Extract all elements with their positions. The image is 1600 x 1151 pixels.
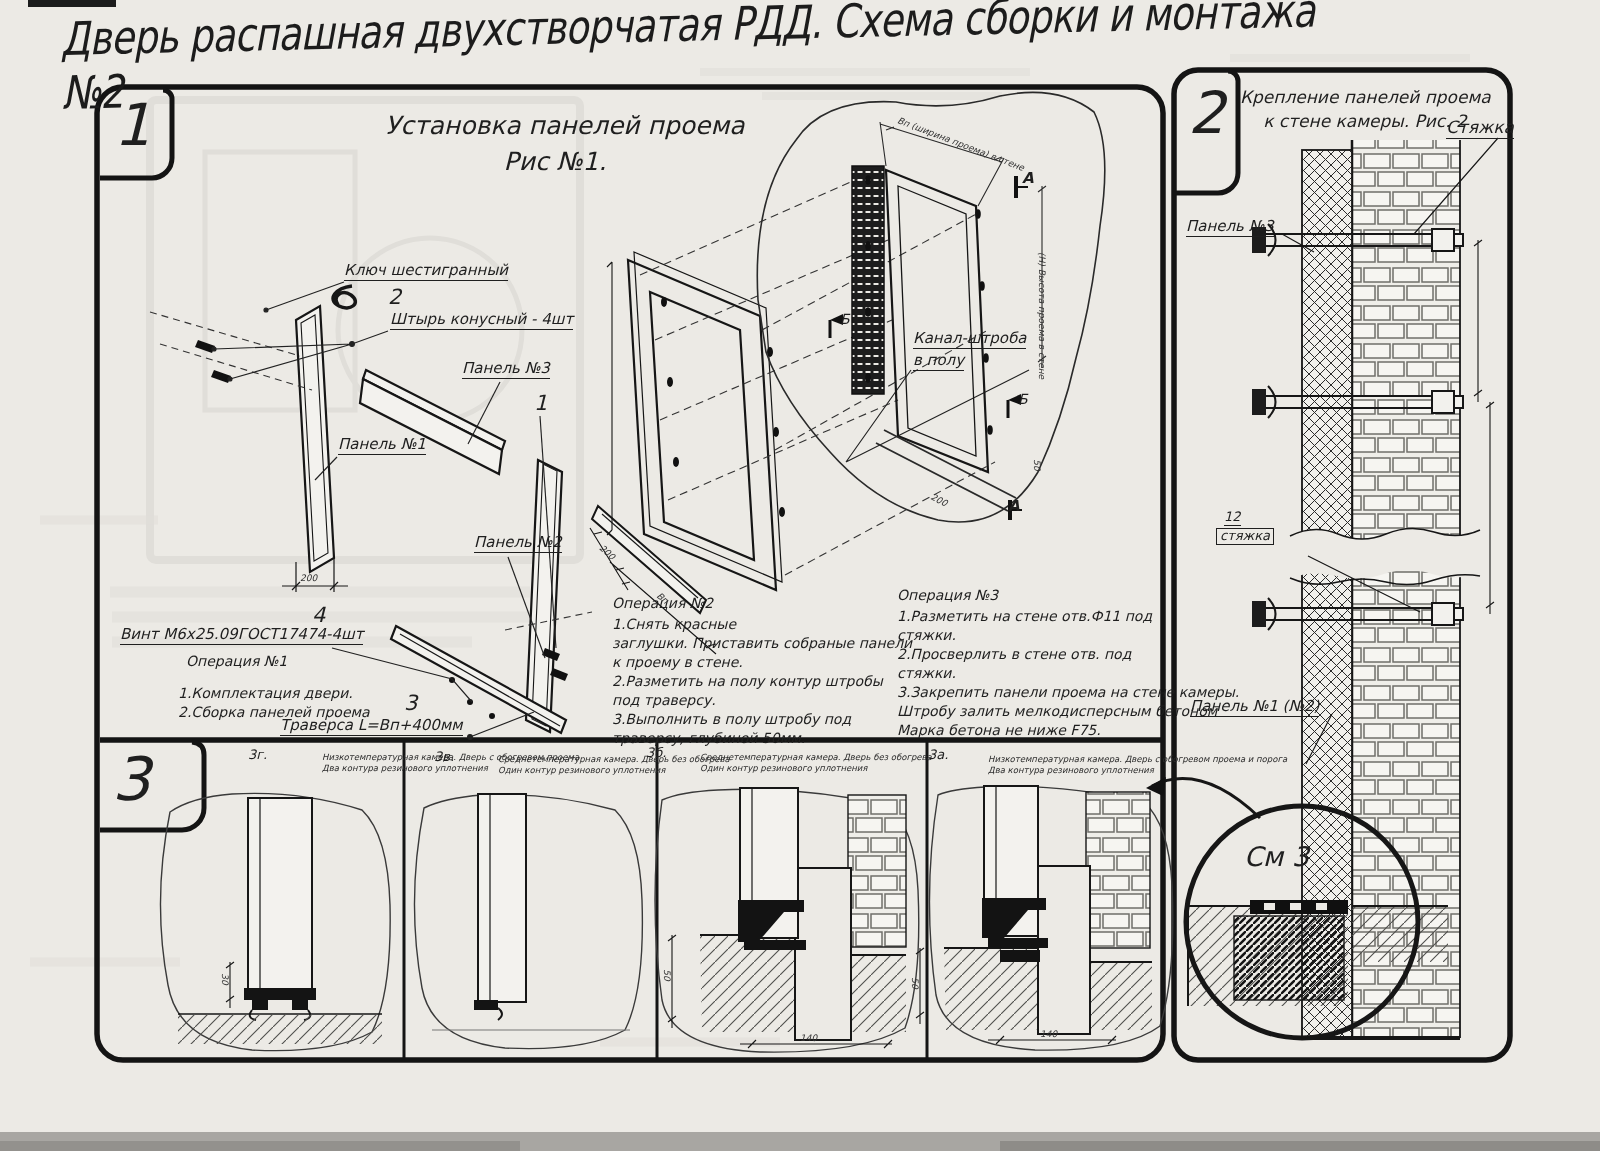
op2-line: 1.Снять красные	[612, 617, 736, 632]
label-channel-1: Канал-штроба	[913, 330, 1026, 349]
dim-50: 50	[661, 969, 671, 980]
detail-id-3v: 3в.	[434, 750, 454, 764]
op3-line: Марка бетона не ниже F75.	[897, 723, 1101, 738]
op3-title: Операция №3	[897, 588, 998, 603]
label-tie: Стяжка	[1446, 118, 1514, 139]
see3-arrow	[1152, 779, 1260, 818]
label-traverse: Траверса L=Bп+400мм	[280, 717, 463, 736]
dim-140: 140	[1040, 1030, 1057, 1040]
embedded-traverse	[1234, 916, 1344, 1000]
dim-opening-height: (Н) Высота проема в стене	[1036, 252, 1046, 379]
op2-line: под траверсу.	[612, 693, 716, 708]
dim-30: 30	[219, 973, 229, 984]
drawing-sheet: Дверь распашная двухстворчатая РДД. Схем…	[0, 0, 1600, 1151]
drawing-linework	[0, 0, 1600, 1151]
detail-id-3a: 3а.	[928, 748, 948, 762]
label-conical-pin: Штырь конусный - 4шт	[390, 311, 573, 330]
wall-channel-strip	[852, 166, 884, 394]
dim-50: 50	[909, 977, 919, 988]
panel2-heading: Крепление панелей проема	[1240, 88, 1490, 107]
detail-caption: Два контура резинового уплотнения	[322, 764, 488, 773]
op1-title: Операция №1	[186, 654, 287, 669]
projection-dashes	[640, 180, 995, 575]
label-screw: Винт М6х25.09ГОСТ17474-4шт	[120, 626, 363, 645]
label-panel12: Панель №1 (№2)	[1190, 698, 1319, 717]
op3-line: стяжки.	[897, 628, 956, 643]
op1-line: 1.Комплектация двери.	[178, 686, 353, 701]
panel1-heading: Установка панелей проема	[385, 112, 725, 140]
op2-line: 3.Выполнить в полу штробу под	[612, 712, 851, 727]
op2-line: заглушки. Приставить собраные панели	[612, 636, 912, 651]
panel1-subheading: Рис №1.	[385, 148, 725, 176]
label-see-detail-3: См 3	[1244, 842, 1309, 872]
dim-50: 50	[1031, 459, 1041, 470]
section-mark-b: Б	[840, 312, 850, 327]
wall-opening-isometric	[757, 92, 1105, 522]
detail-caption: Два контура резинового уплотнения	[988, 766, 1154, 775]
op3-line: стяжки.	[897, 666, 956, 681]
callout-3: 3	[404, 692, 417, 715]
label-panel2: Панель №2	[474, 534, 562, 553]
brick-wall	[1352, 140, 1460, 1038]
op3-line: 1.Разметить на стене отв.Ф11 под	[897, 609, 1152, 624]
wall-fixing-section	[1146, 138, 1498, 1038]
detail-id-3g: 3г.	[248, 748, 267, 762]
label-tie-num: 12	[1224, 510, 1241, 526]
op3-line: 3.Закрепить панели проема на стене камер…	[897, 685, 1239, 700]
detail-id-3b: 3б.	[646, 746, 666, 760]
section-mark-a: А	[1008, 498, 1020, 515]
op2-line: 2.Разметить на полу контур штробы	[612, 674, 883, 689]
detail-caption: Низкотемпературная камера. Дверь с обогр…	[988, 755, 1287, 764]
callout-1: 1	[534, 392, 547, 415]
dim-140: 140	[800, 1034, 817, 1044]
op2-line: траверсу, глубиной 50мм.	[612, 731, 805, 746]
badge-1: 1	[114, 94, 151, 158]
label-hex-key: Ключ шестигранный	[344, 262, 508, 281]
dim-200: 200	[300, 574, 317, 584]
label-channel-2: в полу	[913, 352, 964, 371]
detail-caption: Среднетемпературная камера. Дверь без об…	[700, 753, 932, 762]
op3-line: 2.Просверлить в стене отв. под	[897, 647, 1131, 662]
label-panel3: Панель №3	[462, 360, 550, 379]
assembled-frame-isometric	[590, 252, 785, 654]
badge-2: 2	[1188, 82, 1225, 146]
op2-line: к проему в стене.	[612, 655, 743, 670]
badge-3: 3	[112, 746, 150, 812]
label-panel3-section: Панель №3	[1186, 218, 1274, 237]
detail-caption: Один контур резинового уплотнения	[498, 766, 665, 775]
threshold-details	[160, 786, 1172, 1052]
callout-4: 4	[312, 604, 325, 627]
op3-line: Штробу залить мелкодисперсным бетоном	[897, 704, 1217, 719]
detail-caption: Один контур резинового уплотнения	[700, 764, 867, 773]
label-tie-small: стяжка	[1216, 528, 1274, 545]
section-mark-a: А	[1022, 170, 1034, 187]
callout-2: 2	[388, 286, 401, 309]
detail-caption: Среднетемпературная камера. Дверь без об…	[498, 755, 730, 764]
section-mark-b: Б	[1018, 392, 1028, 407]
label-panel1: Панель №1	[338, 436, 426, 455]
